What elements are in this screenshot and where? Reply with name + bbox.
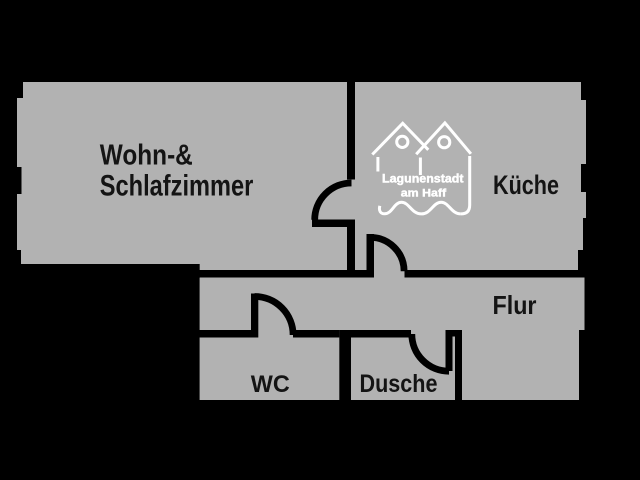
svg-text:Dusche: Dusche: [360, 370, 438, 398]
svg-text:WC: WC: [251, 371, 290, 398]
svg-text:Küche: Küche: [493, 170, 559, 200]
svg-text:Wohn-&: Wohn-&: [100, 140, 193, 172]
svg-text:Lagunenstadt: Lagunenstadt: [382, 174, 464, 186]
svg-text:Schlafzimmer: Schlafzimmer: [100, 169, 254, 202]
svg-text:Flur: Flur: [493, 290, 537, 320]
svg-text:am Haff: am Haff: [401, 188, 447, 200]
